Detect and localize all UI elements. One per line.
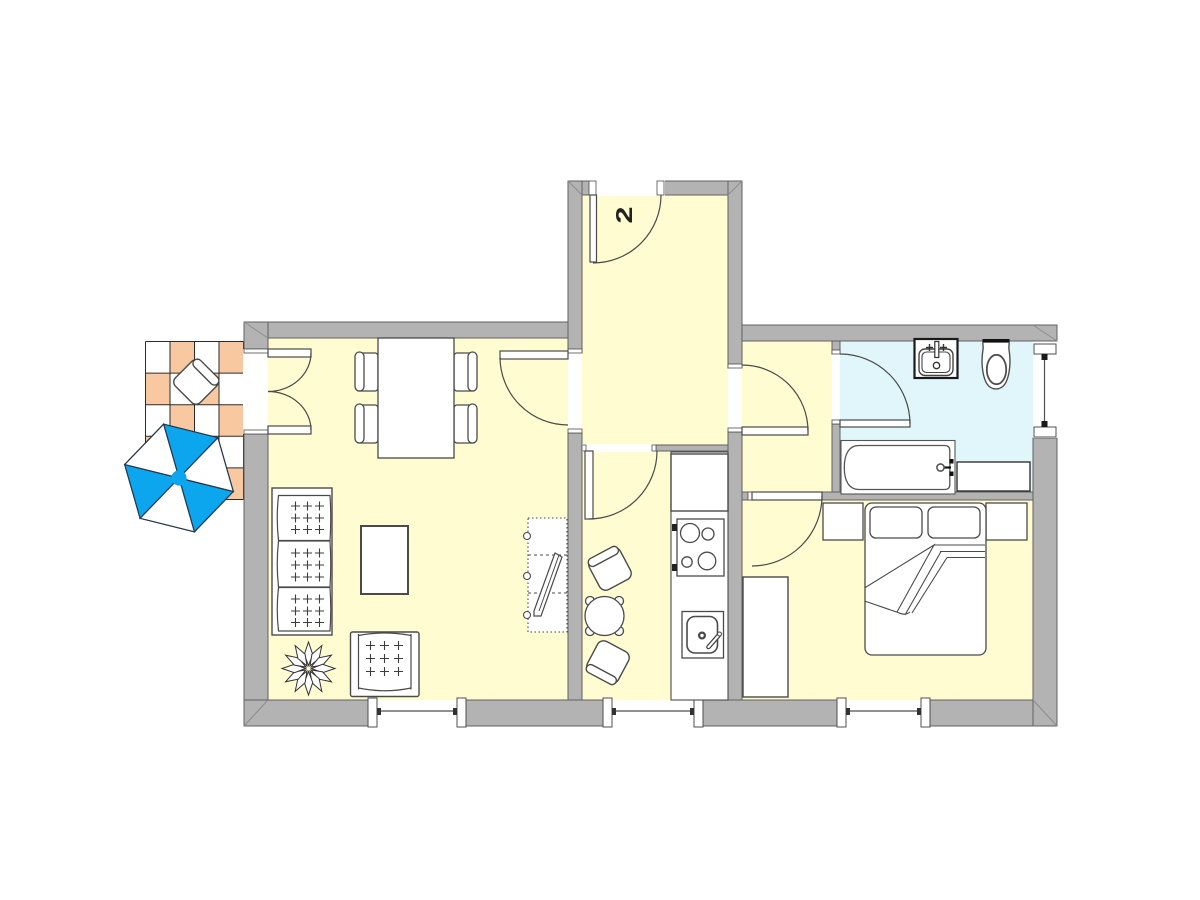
svg-text:2: 2	[611, 207, 637, 224]
